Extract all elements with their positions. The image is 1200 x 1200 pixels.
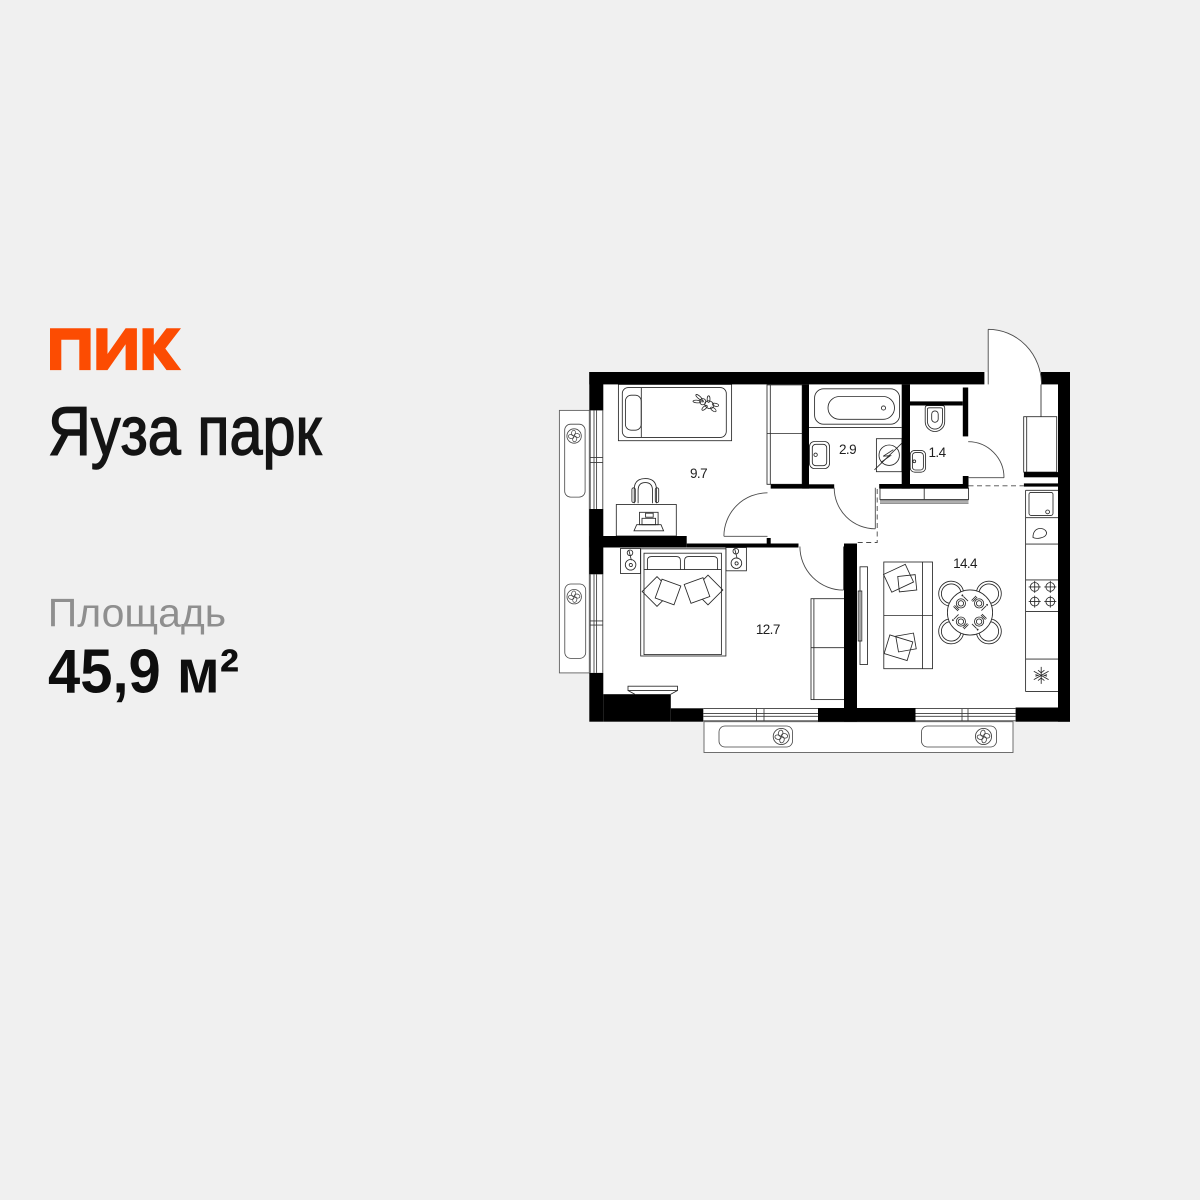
svg-text:9.7: 9.7 [690,466,707,481]
svg-text:2.9: 2.9 [839,442,856,457]
svg-text:1.4: 1.4 [929,445,947,460]
svg-text:45,9 м²: 45,9 м² [48,638,239,707]
svg-text:Площадь: Площадь [48,591,226,635]
svg-text:Яуза парк: Яуза парк [48,392,322,469]
svg-text:12.7: 12.7 [756,622,780,637]
svg-text:14.4: 14.4 [953,556,978,571]
